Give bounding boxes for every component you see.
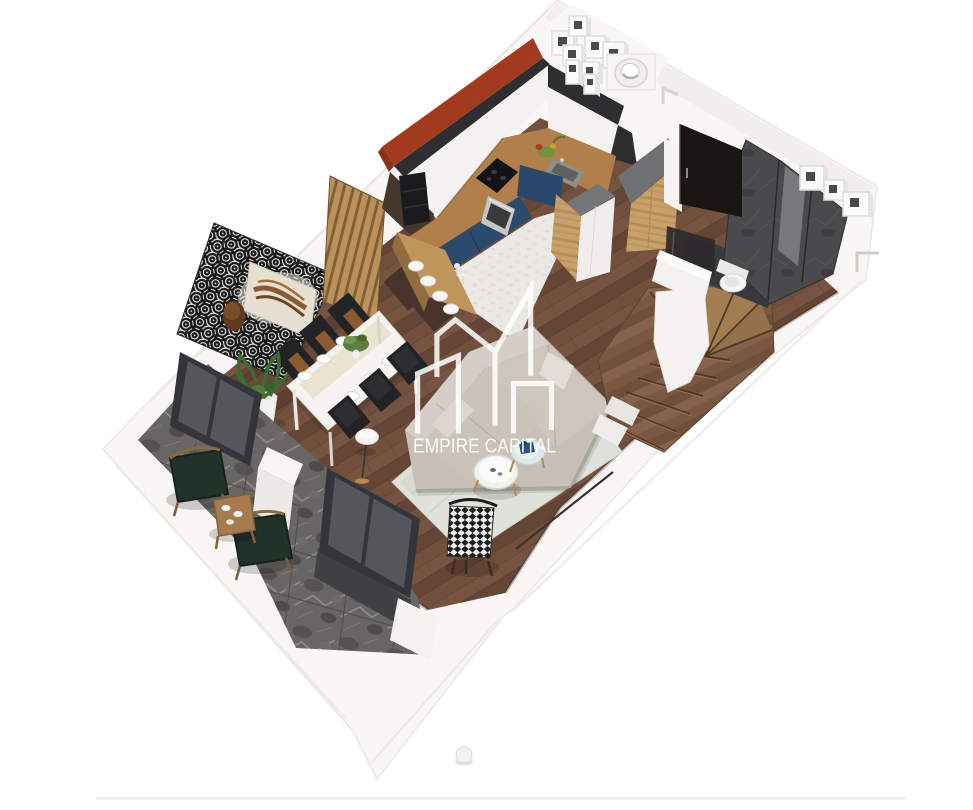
svg-text:EMPIRE CAPITAL: EMPIRE CAPITAL [413,436,556,458]
